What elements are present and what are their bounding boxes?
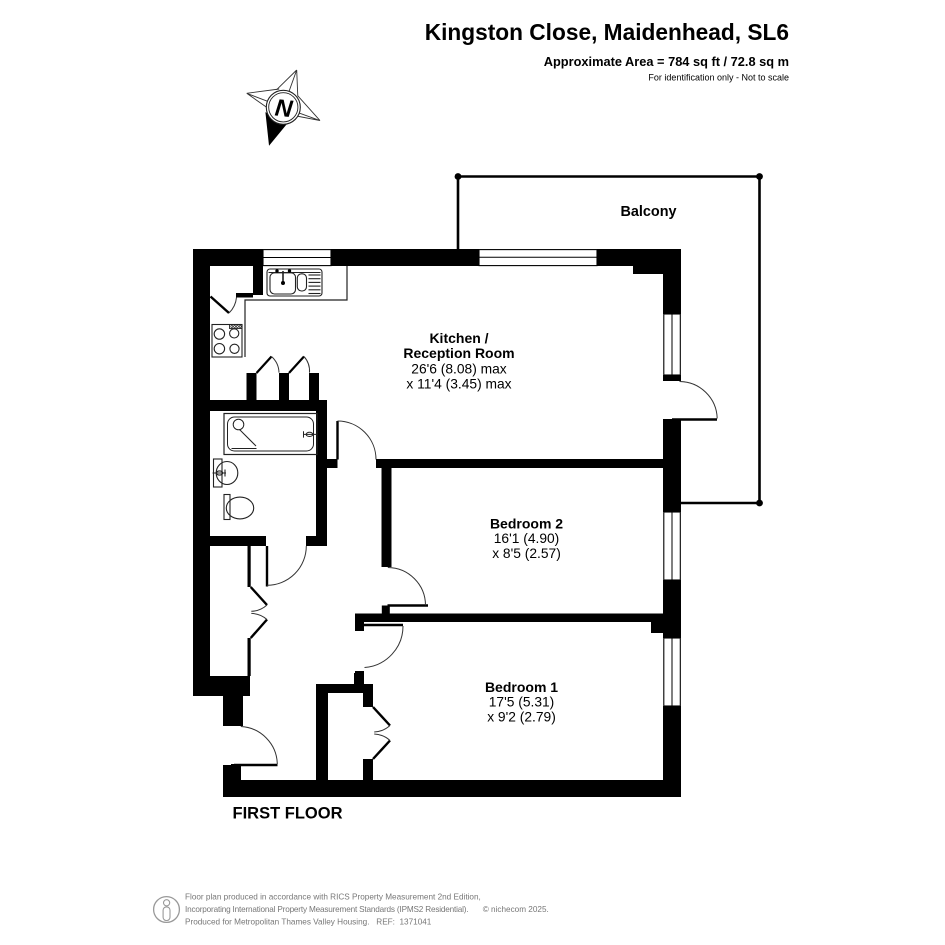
svg-text:16'1 (4.90): 16'1 (4.90) — [494, 531, 560, 546]
svg-text:x 9'2 (2.79): x 9'2 (2.79) — [487, 709, 556, 724]
svg-text:N: N — [274, 95, 295, 124]
svg-text:Floor plan produced in accorda: Floor plan produced in accordance with R… — [185, 893, 481, 902]
svg-text:x 11'4 (3.45) max: x 11'4 (3.45) max — [406, 376, 511, 391]
svg-text:Balcony: Balcony — [621, 204, 677, 220]
svg-text:For identification only - Not: For identification only - Not to scale — [648, 73, 789, 83]
svg-text:Incorporating International Pr: Incorporating International Property Mea… — [185, 905, 468, 914]
svg-text:© nichecom 2025.: © nichecom 2025. — [483, 905, 549, 914]
svg-text:FIRST FLOOR: FIRST FLOOR — [233, 805, 343, 823]
svg-text:Bedroom 2: Bedroom 2 — [490, 516, 563, 532]
svg-text:17'5 (5.31): 17'5 (5.31) — [489, 695, 555, 710]
svg-text:Kingston Close, Maidenhead, SL: Kingston Close, Maidenhead, SL6 — [425, 19, 789, 45]
svg-text:x 8'5 (2.57): x 8'5 (2.57) — [492, 546, 561, 561]
svg-text:Approximate Area = 784 sq ft /: Approximate Area = 784 sq ft / 72.8 sq m — [544, 54, 789, 69]
svg-text:Produced for Metropolitan Tham: Produced for Metropolitan Thames Valley … — [185, 918, 432, 927]
svg-text:26'6 (8.08) max: 26'6 (8.08) max — [411, 361, 507, 376]
svg-text:Bedroom 1: Bedroom 1 — [485, 679, 558, 695]
svg-text:Kitchen /: Kitchen / — [429, 330, 488, 346]
svg-text:Reception Room: Reception Room — [403, 345, 514, 361]
